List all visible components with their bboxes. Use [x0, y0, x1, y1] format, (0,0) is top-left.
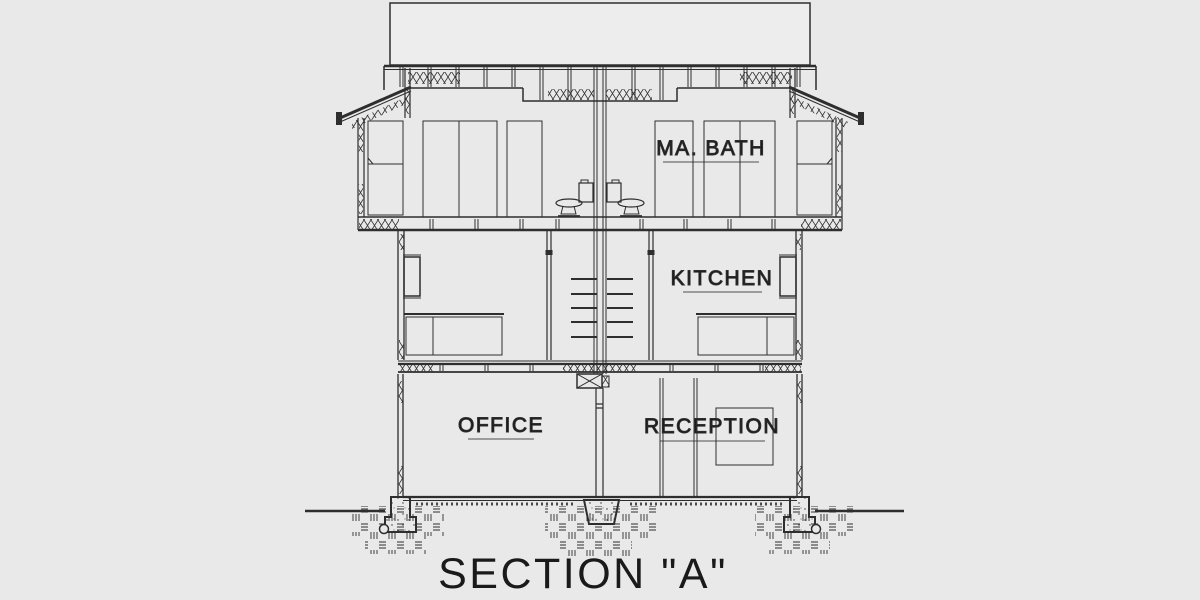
- toilet-right: [607, 180, 644, 216]
- section-a-drawing: MA. BATH KITCHEN: [0, 0, 1200, 600]
- drain-pipe-left: [380, 525, 389, 534]
- insulation-batt: [740, 72, 792, 84]
- label-ma-bath: MA. BATH: [656, 137, 766, 160]
- label-reception: RECEPTION: [644, 415, 780, 438]
- insulation-batt: [408, 72, 460, 84]
- stair-treads: [571, 279, 633, 337]
- shower-enclosure: [368, 121, 403, 215]
- window-right: [780, 257, 796, 296]
- label-kitchen: KITCHEN: [671, 267, 774, 290]
- architectural-section-page: MA. BATH KITCHEN: [0, 0, 1200, 600]
- shower-enclosure: [797, 121, 832, 215]
- insulation-batt: [548, 89, 594, 100]
- glulam-beam: [577, 374, 609, 388]
- middle-floor-band: [398, 361, 802, 372]
- insulation-batt: [606, 89, 652, 100]
- left-dormer: [336, 68, 411, 217]
- lower-floor: OFFICE RECEPTION: [398, 374, 802, 497]
- right-dormer: [789, 68, 864, 217]
- foundation: [305, 497, 904, 556]
- closet-elevation: [655, 121, 693, 217]
- drawing-title: SECTION "A": [438, 550, 728, 598]
- kitchen-counter-left: [404, 314, 504, 355]
- closet-elevation: [423, 121, 497, 217]
- closet-elevation: [507, 121, 542, 217]
- fascia: [858, 112, 864, 125]
- toilet-left: [556, 180, 593, 216]
- stair-walls: [547, 231, 653, 360]
- party-wall: [594, 66, 606, 374]
- upper-floor-band: [358, 217, 842, 230]
- drain-pipe-right: [812, 525, 821, 534]
- footing-center: [584, 500, 619, 524]
- fascia: [336, 112, 342, 125]
- roof-beyond: [390, 3, 810, 65]
- center-post: [596, 388, 603, 497]
- label-office: OFFICE: [458, 414, 544, 437]
- earth-hatch: [768, 536, 830, 554]
- upper-floor-rooms: MA. BATH: [423, 121, 775, 217]
- kitchen-counter-right: [696, 314, 796, 355]
- window-left: [404, 257, 420, 296]
- attic-truss-band: [384, 66, 816, 101]
- middle-floor: KITCHEN: [398, 231, 802, 360]
- earth-hatch: [365, 536, 427, 554]
